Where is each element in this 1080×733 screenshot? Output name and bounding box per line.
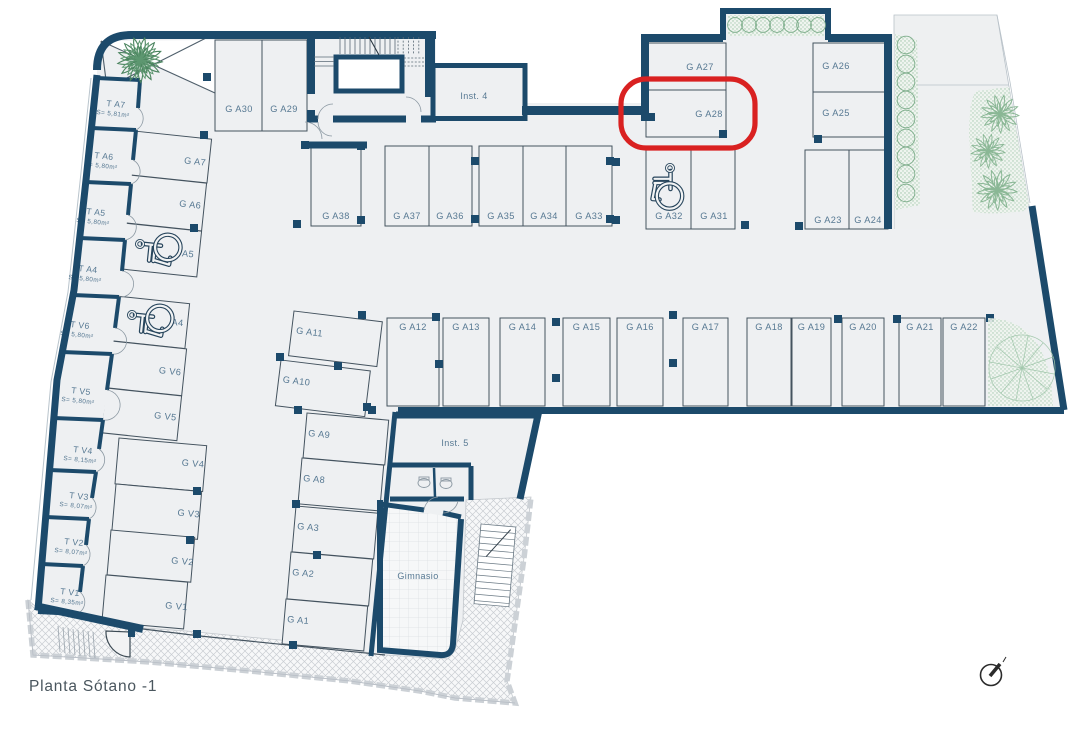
svg-text:G A12: G A12 — [399, 322, 427, 332]
svg-text:G A1: G A1 — [287, 614, 310, 626]
svg-text:T A7: T A7 — [106, 98, 126, 110]
svg-text:G V2: G V2 — [171, 555, 194, 567]
svg-text:A5: A5 — [182, 248, 195, 259]
svg-text:T A5: T A5 — [86, 206, 106, 218]
svg-text:G A21: G A21 — [906, 322, 934, 332]
svg-text:G A36: G A36 — [436, 211, 464, 221]
svg-text:G A33: G A33 — [575, 211, 603, 221]
svg-text:Inst. 4: Inst. 4 — [460, 91, 487, 101]
svg-text:G A28: G A28 — [695, 109, 723, 119]
svg-text:G A25: G A25 — [822, 108, 850, 118]
svg-text:G A27: G A27 — [686, 62, 714, 72]
svg-text:G A31: G A31 — [700, 211, 728, 221]
svg-text:G A17: G A17 — [692, 322, 720, 332]
svg-text:G V1: G V1 — [165, 600, 188, 612]
svg-text:T V6: T V6 — [70, 319, 91, 331]
svg-text:G V4: G V4 — [181, 458, 204, 470]
svg-text:Inst. 5: Inst. 5 — [441, 438, 468, 448]
svg-text:G A22: G A22 — [950, 322, 978, 332]
svg-text:G A3: G A3 — [297, 521, 320, 533]
svg-text:G A35: G A35 — [487, 211, 515, 221]
svg-text:T V4: T V4 — [73, 444, 94, 456]
svg-text:G A37: G A37 — [393, 211, 421, 221]
svg-text:G A18: G A18 — [755, 322, 783, 332]
svg-text:T V2: T V2 — [64, 536, 85, 548]
svg-text:G A13: G A13 — [452, 322, 480, 332]
svg-text:Gimnasio: Gimnasio — [397, 571, 438, 581]
svg-text:G A19: G A19 — [798, 322, 826, 332]
svg-text:T V1: T V1 — [60, 586, 81, 598]
svg-text:G A20: G A20 — [849, 322, 877, 332]
svg-text:G A26: G A26 — [822, 61, 850, 71]
svg-text:T V3: T V3 — [69, 490, 90, 502]
svg-text:T A4: T A4 — [78, 263, 98, 275]
svg-text:T A6: T A6 — [94, 150, 114, 162]
svg-text:G A23: G A23 — [814, 215, 842, 225]
svg-text:G A34: G A34 — [530, 211, 558, 221]
svg-text:G A15: G A15 — [573, 322, 601, 332]
svg-text:G A8: G A8 — [303, 473, 326, 485]
svg-text:G A24: G A24 — [854, 215, 882, 225]
svg-text:Planta Sótano -1: Planta Sótano -1 — [29, 678, 157, 695]
svg-text:G A29: G A29 — [270, 104, 298, 114]
svg-text:G A30: G A30 — [225, 104, 253, 114]
svg-text:G A9: G A9 — [308, 428, 331, 440]
svg-text:G A14: G A14 — [509, 322, 537, 332]
svg-text:G A38: G A38 — [322, 211, 350, 221]
svg-text:T V5: T V5 — [71, 385, 92, 397]
svg-text:G A32: G A32 — [655, 211, 683, 221]
svg-text:G A2: G A2 — [292, 567, 315, 579]
svg-text:G V3: G V3 — [177, 507, 200, 519]
svg-text:G A16: G A16 — [626, 322, 654, 332]
